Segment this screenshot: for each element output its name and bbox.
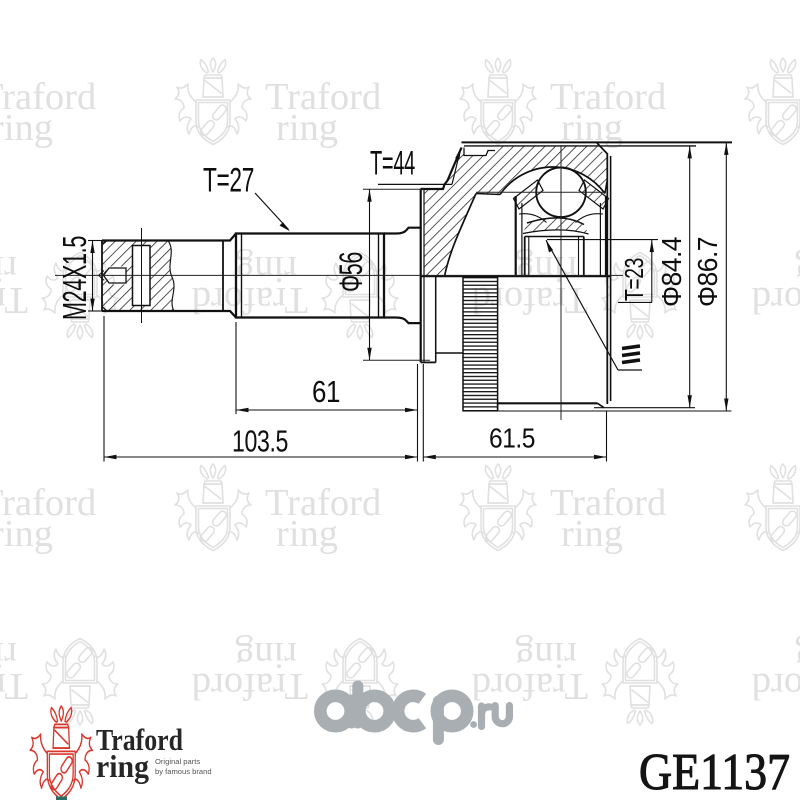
- svg-text:M24X1.5: M24X1.5: [56, 236, 93, 320]
- svg-text:GE1137: GE1137: [639, 744, 790, 800]
- svg-text:Φ84.4: Φ84.4: [656, 237, 687, 307]
- svg-text:Φ56: Φ56: [333, 252, 369, 292]
- svg-text:T=23: T=23: [619, 258, 649, 301]
- svg-text:by famous brand: by famous brand: [155, 767, 212, 776]
- svg-text:ring: ring: [96, 748, 149, 784]
- svg-text:61: 61: [312, 374, 340, 409]
- svg-text:61.5: 61.5: [489, 423, 535, 454]
- svg-text:103.5: 103.5: [232, 424, 288, 459]
- svg-text:Φ86.7: Φ86.7: [692, 237, 723, 307]
- svg-text:Original parts: Original parts: [155, 757, 200, 766]
- svg-text:T=27: T=27: [203, 162, 254, 200]
- svg-text:T=44: T=44: [370, 145, 415, 183]
